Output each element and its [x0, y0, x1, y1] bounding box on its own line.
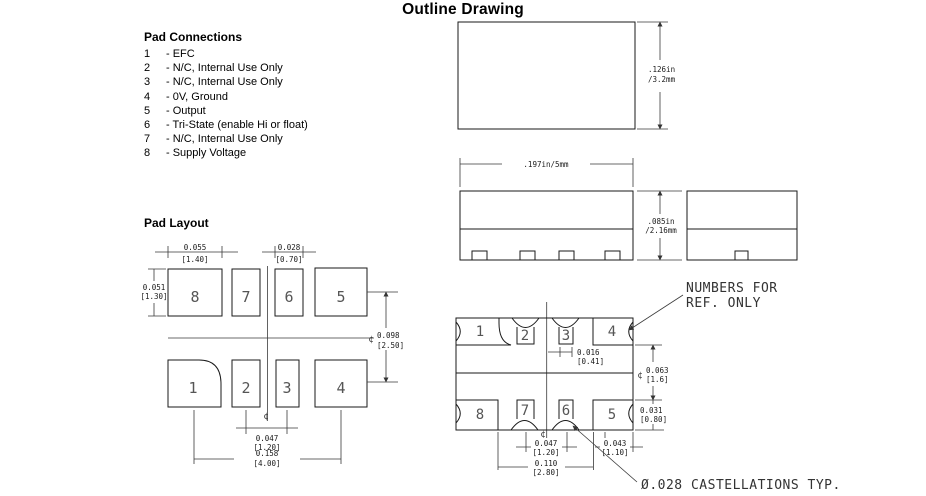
- side-view: .197in/5mm .085in /2.16mm: [460, 158, 682, 260]
- pad-label: 8: [476, 407, 484, 423]
- svg-text:Ø.028 CASTELLATIONS TYP.: Ø.028 CASTELLATIONS TYP.: [641, 478, 841, 493]
- pad-label: 4: [336, 379, 345, 397]
- pad-label: 8: [190, 288, 199, 306]
- svg-text:0.063: 0.063: [646, 366, 669, 375]
- svg-text:/2.16mm: /2.16mm: [645, 226, 677, 235]
- dim-pad-height: 0.051 [1.30]: [140, 269, 167, 316]
- svg-text:[1.40]: [1.40]: [181, 255, 208, 264]
- pad-label: 3: [562, 328, 570, 344]
- svg-text:REF. ONLY: REF. ONLY: [686, 296, 761, 311]
- svg-text:[2.50]: [2.50]: [377, 341, 404, 350]
- svg-text:[0.80]: [0.80]: [640, 415, 667, 424]
- svg-text:.197in/5mm: .197in/5mm: [523, 160, 569, 169]
- outline-drawing-page: Outline Drawing Pad Connections 1 - EFC …: [0, 0, 926, 496]
- pad-label: 1: [188, 379, 197, 397]
- note-castellations: Ø.028 CASTELLATIONS TYP.: [573, 426, 841, 493]
- svg-text:[2.80]: [2.80]: [532, 468, 559, 477]
- svg-text:0.016: 0.016: [577, 348, 600, 357]
- svg-text:[1.10]: [1.10]: [601, 448, 628, 457]
- end-view: [687, 191, 797, 260]
- svg-text:0.047: 0.047: [256, 434, 279, 443]
- dim-side-view-width: .197in/5mm: [460, 158, 633, 187]
- centerline-symbol: ¢: [637, 371, 642, 381]
- svg-text:0.031: 0.031: [640, 406, 663, 415]
- dim-row-pitch: ¢ 0.098 [2.50]: [367, 292, 405, 382]
- dim-pad-small-width: 0.028 [0.70]: [262, 243, 316, 264]
- dim-top-view-height: .126in /3.2mm: [637, 22, 676, 129]
- svg-text:NUMBERS FOR: NUMBERS FOR: [686, 281, 778, 296]
- svg-text:[4.00]: [4.00]: [253, 459, 280, 468]
- pad-label: 5: [608, 407, 616, 423]
- pad-label: 1: [476, 324, 484, 340]
- dim-bv-pad-width: 0.016 [0.41]: [548, 347, 604, 366]
- svg-text:[1.30]: [1.30]: [140, 292, 167, 301]
- bottom-view: 1 2 3 4 8 7 6 5 0.016 [0.41] ¢ 0.063 [1.…: [456, 281, 841, 493]
- dim-bv-row-gap: ¢ 0.063 [1.6]: [637, 345, 668, 400]
- svg-text:0.043: 0.043: [604, 439, 627, 448]
- svg-text:0.098: 0.098: [377, 331, 400, 340]
- svg-text:/3.2mm: /3.2mm: [648, 75, 676, 84]
- side-view-pads: [472, 251, 620, 260]
- svg-text:[0.70]: [0.70]: [275, 255, 302, 264]
- dim-pad-large-width: 0.055 [1.40]: [155, 243, 238, 264]
- pad-label: 6: [562, 403, 570, 419]
- svg-text:0.158: 0.158: [256, 449, 279, 458]
- pad-label: 6: [284, 288, 293, 306]
- end-view-pad: [735, 251, 748, 260]
- pad-label: 2: [521, 328, 529, 344]
- dim-bv-pad-height: 0.031 [0.80]: [637, 400, 667, 430]
- svg-text:.085in: .085in: [647, 217, 674, 226]
- svg-text:0.055: 0.055: [184, 243, 207, 252]
- svg-text:0.047: 0.047: [535, 439, 558, 448]
- svg-text:.126in: .126in: [648, 65, 675, 74]
- svg-text:0.110: 0.110: [535, 459, 558, 468]
- svg-text:0.051: 0.051: [143, 283, 166, 292]
- pad-label: 2: [241, 379, 250, 397]
- dim-bv-corner-pad: 0.043 [1.10]: [595, 432, 643, 457]
- pad-label: 7: [521, 403, 529, 419]
- pad-label: 3: [282, 379, 291, 397]
- pad-label: 5: [336, 288, 345, 306]
- dim-side-view-height: .085in /2.16mm: [637, 191, 682, 260]
- outline-drawings: 8 7 6 5 1 2 3 4 0.055 [1.40] 0.028 [0.70…: [0, 0, 926, 496]
- top-view: .126in /3.2mm: [458, 22, 676, 129]
- pad-label: 4: [608, 324, 616, 340]
- svg-text:[0.41]: [0.41]: [577, 357, 604, 366]
- svg-text:0.028: 0.028: [278, 243, 301, 252]
- centerline-symbol: ¢: [263, 412, 268, 422]
- pad-label: 7: [241, 288, 250, 306]
- centerline-symbol: ¢: [368, 335, 373, 345]
- pad-layout-diagram: 8 7 6 5 1 2 3 4 0.055 [1.40] 0.028 [0.70…: [140, 243, 405, 468]
- svg-text:[1.6]: [1.6]: [646, 375, 669, 384]
- note-numbers-ref: NUMBERS FOR REF. ONLY: [629, 281, 778, 330]
- svg-text:[1.20]: [1.20]: [532, 448, 559, 457]
